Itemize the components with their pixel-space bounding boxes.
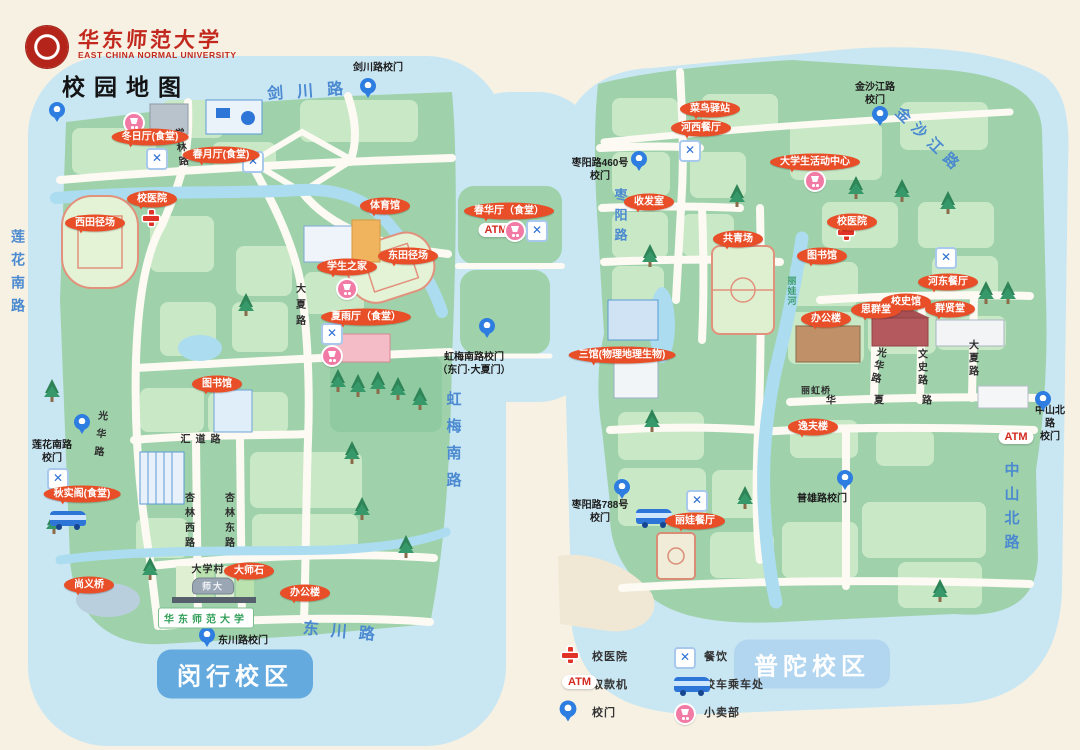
poi-label: 菜鸟驿站 (680, 101, 740, 118)
gate-label: 莲花南路 校门 (32, 439, 72, 465)
poi-label: 春华厅（食堂） (464, 203, 554, 220)
legend: 校医院 餐饮 ATM 取款机 校车乘车处 校门 小卖部 (552, 642, 782, 726)
road-label: 光华路 (866, 345, 889, 386)
legend-label-shop: 小卖部 (704, 704, 776, 720)
road-label: 东川路 (302, 614, 388, 645)
poi-label: 西田径场 (65, 215, 125, 232)
road-label: 文史路 (914, 349, 929, 388)
dining-icon (935, 247, 957, 269)
road-label: 虹梅南路 (443, 391, 464, 499)
minhang-gate-sign: 华东师范大学 (158, 608, 254, 629)
poi-label: 冬日厅(食堂) (112, 129, 189, 146)
poi-label: 群贤堂 (925, 301, 975, 318)
atm-icon: ATM (562, 675, 597, 689)
legend-label-hospital: 校医院 (592, 648, 664, 664)
poi-label: 春月厅(食堂) (183, 147, 260, 164)
gate-pin-icon (837, 470, 853, 492)
gate-pin-icon (199, 627, 215, 649)
university-seal-logo (26, 26, 68, 68)
poi-label: 思群堂 (851, 302, 901, 319)
hospital-cross-icon (562, 647, 578, 663)
road-label: 大学村 (192, 561, 225, 576)
shop-icon (321, 345, 343, 367)
shop-icon (336, 278, 358, 300)
map-annotation-layer: 冬日厅(食堂)春月厅(食堂)校医院西田径场体育馆东田径场学生之家夏雨厅（食堂）图… (0, 0, 1080, 750)
poi-label: 图书馆 (192, 376, 242, 393)
legend-label-atm: 取款机 (592, 676, 664, 692)
poi-label: 图书馆 (797, 248, 847, 265)
gate-label: 金沙江路 校门 (855, 81, 895, 107)
legend-row: 校门 小卖部 (552, 698, 782, 726)
poi-label: 校医院 (127, 191, 177, 208)
road-label: 杏林西路 (181, 492, 196, 552)
poi-label: 丽娃餐厅 (665, 513, 725, 530)
gate-pin-icon (631, 151, 647, 173)
poi-label: 大师石 (224, 563, 274, 580)
gate-pin-icon (360, 78, 376, 100)
poi-label: 共青场 (713, 231, 763, 248)
poi-label: 办公楼 (280, 585, 330, 602)
road-label: 大夏路 (965, 340, 980, 379)
campus-map-page: 冬日厅(食堂)春月厅(食堂)校医院西田径场体育馆东田径场学生之家夏雨厅（食堂）图… (0, 0, 1080, 750)
cross-icon (143, 210, 159, 226)
legend-label-dining: 餐饮 (704, 648, 776, 664)
gate-label: 剑川路校门 (353, 62, 403, 75)
atm-icon: ATM (998, 430, 1033, 444)
poi-label: 体育馆 (360, 198, 410, 215)
dining-icon (526, 220, 548, 242)
page-title: 校园地图 (62, 68, 190, 102)
legend-row: 校医院 餐饮 (552, 642, 782, 670)
campus-badge-minhang: 闵行校区 (157, 650, 313, 699)
road-label: 莲花南路 (8, 229, 28, 321)
poi-label: 逸夫楼 (788, 419, 838, 436)
gate-pin-icon (479, 318, 495, 340)
gate-pin-icon (614, 479, 630, 501)
bus-icon (674, 675, 710, 697)
road-label: 光华路 (89, 409, 110, 464)
road-label: 剑川路 (266, 74, 357, 104)
gate-pin-icon (74, 414, 90, 436)
poi-label: 夏雨厅（食堂） (321, 309, 411, 326)
dining-icon (686, 490, 708, 512)
poi-label: 三馆(物理地理生物) (569, 347, 676, 364)
dining-icon (146, 148, 168, 170)
poi-label: 大学生活动中心 (770, 154, 860, 171)
road-label: 丽虹桥 (801, 384, 831, 397)
gate-label: 东川路校门 (218, 635, 268, 648)
road-label: 华夏路 (826, 392, 970, 407)
poi-label: 河西餐厅 (671, 120, 731, 137)
gate-pin-icon (560, 700, 577, 723)
shida-stone: 师大 (192, 578, 234, 595)
university-name-en: EAST CHINA NORMAL UNIVERSITY (78, 50, 237, 60)
road-label: 中山北路 (1001, 462, 1022, 558)
dining-icon (679, 140, 701, 162)
road-label: 大夏路 (292, 283, 307, 331)
road-label: 丽娃河 (786, 276, 799, 306)
shop-icon (504, 220, 526, 242)
dining-icon (674, 647, 696, 669)
poi-label: 学生之家 (317, 259, 377, 276)
gate-pin-icon (872, 106, 888, 128)
poi-label: 收发室 (624, 194, 674, 211)
legend-row: ATM 取款机 校车乘车处 (552, 670, 782, 698)
poi-label: 办公楼 (801, 311, 851, 328)
gate-label: 虹梅南路校门 （东门·大夏门） (437, 351, 510, 377)
road-label: 金沙江路 (891, 102, 969, 178)
poi-label: 校医院 (827, 214, 877, 231)
gate-pin-icon (1035, 391, 1051, 413)
legend-label-gate: 校门 (592, 704, 664, 720)
gate-pin-icon (49, 102, 65, 124)
poi-label: 秋实阁(食堂) (44, 486, 121, 503)
legend-label-bus: 校车乘车处 (704, 676, 776, 692)
road-label: 杏林东路 (221, 492, 236, 552)
gate-label: 枣阳路460号 校门 (572, 157, 629, 183)
poi-label: 尚义桥 (64, 577, 114, 594)
poi-label: 河东餐厅 (918, 274, 978, 291)
poi-label: 东田径场 (378, 248, 438, 265)
shop-icon (804, 170, 826, 192)
shop-icon (674, 703, 696, 725)
road-label: 汇道路 (181, 431, 226, 446)
bus-icon (50, 509, 86, 531)
